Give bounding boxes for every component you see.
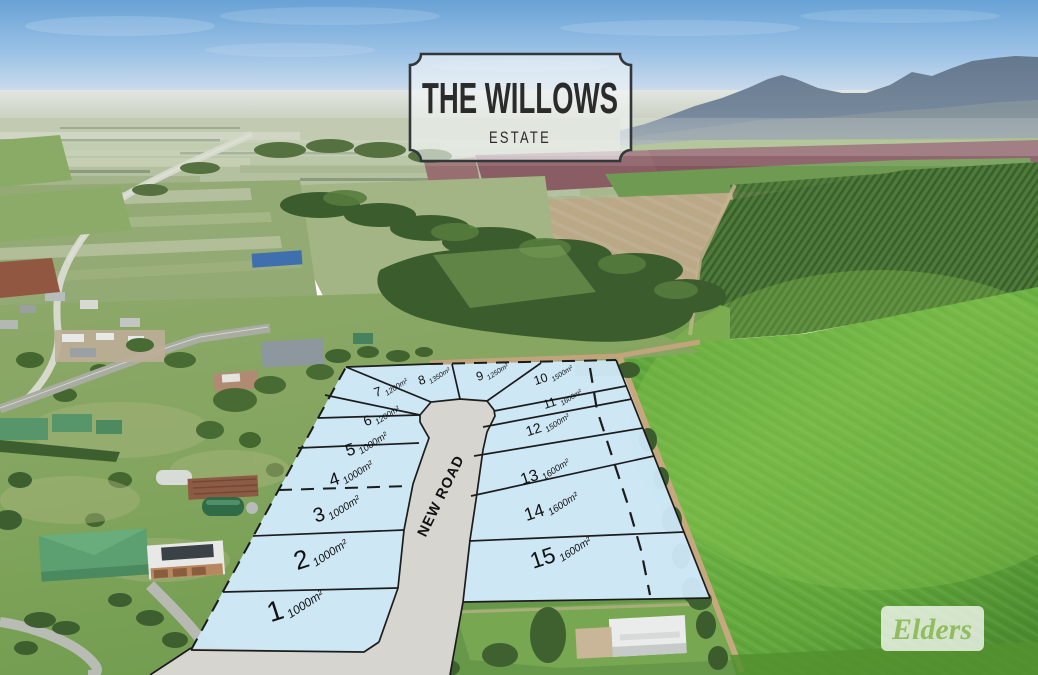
svg-text:ESTATE: ESTATE [489, 128, 551, 147]
svg-text:THE WILLOWS: THE WILLOWS [422, 74, 618, 123]
svg-text:Elders: Elders [891, 613, 972, 646]
